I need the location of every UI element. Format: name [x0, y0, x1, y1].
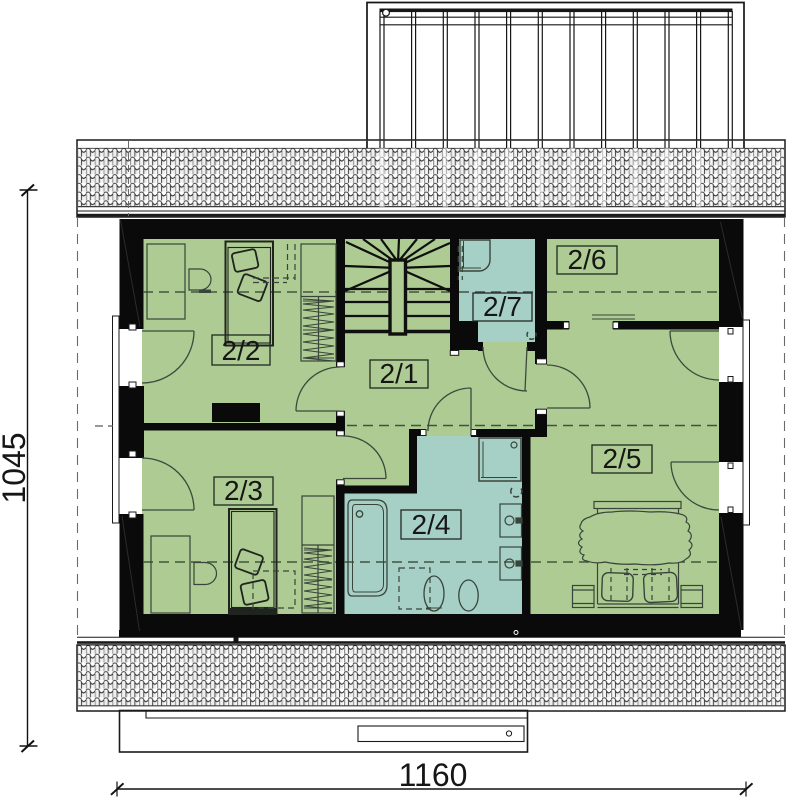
- svg-text:2/4: 2/4: [412, 509, 451, 540]
- svg-text:2/7: 2/7: [483, 291, 522, 322]
- svg-text:2/6: 2/6: [568, 244, 607, 275]
- svg-text:2/2: 2/2: [222, 335, 261, 366]
- svg-text:2/5: 2/5: [603, 443, 642, 474]
- svg-text:2/1: 2/1: [380, 358, 419, 389]
- svg-text:2/3: 2/3: [224, 475, 263, 506]
- svg-text:1045: 1045: [0, 432, 32, 503]
- svg-text:1160: 1160: [399, 757, 468, 793]
